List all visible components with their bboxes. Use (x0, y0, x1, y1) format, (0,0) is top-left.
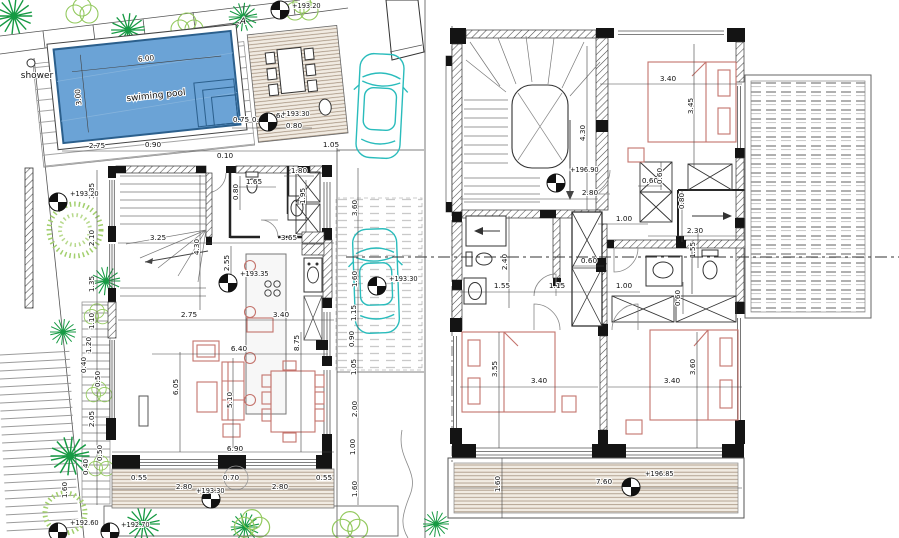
level-marker-icon (622, 478, 640, 496)
dim-label: 3.65 (281, 233, 297, 242)
level-label: +193.20 (292, 2, 321, 10)
dim-label: 3.40 (664, 376, 681, 385)
level-marker-icon (259, 113, 277, 131)
dim-label: 6.05 (171, 379, 180, 395)
dim-label: 3.40 (273, 310, 290, 319)
level-label: +193.30 (196, 487, 225, 495)
dim-label: 0.10 (217, 151, 234, 160)
swimming-pool (54, 31, 241, 143)
dim-label: 0.55 (131, 473, 147, 482)
dim-label: 7.60 (596, 477, 613, 486)
bed (628, 62, 736, 162)
dim-label: 8.75 (292, 335, 301, 351)
dim-label: 0.40 (79, 357, 88, 374)
level-label: +193.30 (389, 275, 418, 283)
washbasin-icon (469, 283, 482, 300)
car-icon (350, 53, 409, 160)
dim-label: 0.50 (93, 371, 102, 388)
dim-label: 6.90 (227, 444, 244, 453)
dim-label: 5.10 (225, 392, 234, 409)
dim-label: 3.55 (490, 361, 499, 377)
level-label: +193.20 (70, 190, 99, 198)
dim-label: 0.80 (286, 121, 303, 130)
dim-label: 0.50 (95, 445, 104, 462)
dim-label: 2.55 (222, 255, 231, 271)
dim-label: 1.60 (493, 476, 502, 493)
dim-label: 0.55 (316, 473, 332, 482)
dim-label: 1.95 (298, 188, 307, 204)
dim-label: 3.40 (531, 376, 548, 385)
tree-icon (423, 511, 449, 537)
dim-label: 2.75 (181, 310, 197, 319)
tree-icon (50, 319, 76, 345)
dim-label: 2.80 (582, 188, 599, 197)
level-marker-icon (101, 523, 119, 538)
dim-label: 2.80 (176, 482, 193, 491)
dim-label: 0.60 (655, 168, 664, 185)
dim-label: 2.75 (89, 141, 105, 150)
level-label: +192.70 (121, 521, 150, 529)
shower-label: shower (21, 71, 54, 81)
dim-label: 0.75 (233, 115, 249, 124)
dim-label: 2.80 (272, 482, 289, 491)
level-label: +193.30 (281, 110, 310, 118)
toilet-icon (476, 253, 492, 265)
dim-label: 1.35 (87, 276, 96, 292)
dim-label: 3.60 (350, 200, 359, 217)
dim-label: 0.60 (673, 290, 682, 307)
kitchen-sink (304, 258, 322, 292)
level-label: +196.85 (645, 470, 674, 478)
dim-label: 3.45 (686, 98, 695, 114)
dim-label: 1.55 (494, 281, 510, 290)
dim-label: 0.40 (81, 459, 90, 476)
dim-label: 2.40 (500, 254, 509, 271)
level-marker-icon (368, 277, 386, 295)
bush-icon (332, 512, 367, 538)
dim-label: 4.30 (192, 239, 201, 256)
dim-label: 0.90 (145, 140, 162, 149)
dim-label: 1.20 (84, 337, 93, 354)
utility-box (386, 0, 424, 60)
dim-label: 1.00 (616, 281, 633, 290)
dim-label: 1.05 (323, 140, 339, 149)
dim-label: 3.00 (73, 88, 84, 105)
dim-label: 1.80 (291, 166, 308, 175)
dim-label: 1.15 (349, 305, 358, 321)
dim-label: 2.05 (87, 411, 96, 427)
washbasin-icon (653, 262, 673, 278)
tree-icon (0, 0, 32, 34)
bed (626, 330, 738, 434)
kitchen-island (246, 254, 286, 414)
level-marker-icon (219, 274, 237, 292)
shower-head-icon (27, 59, 35, 67)
dim-label: 2.10 (87, 230, 96, 247)
swimming-pool-area: 6.00 3.00 swiming pool (31, 24, 255, 167)
dim-label: 0.70 (223, 473, 240, 482)
dim-label: 2.30 (687, 226, 704, 235)
architectural-drawing: A 6.00 3.00 swiming pool shower (0, 0, 899, 538)
dim-label: 1.60 (350, 481, 359, 498)
dim-label: 1.55 (688, 242, 697, 258)
level-label: +192.60 (70, 519, 99, 527)
dim-label: 3.25 (150, 233, 166, 242)
dim-label: 1.60 (350, 271, 359, 288)
dim-label: 6.40 (231, 344, 248, 353)
dim-label: 1.10 (87, 313, 96, 330)
dim-label: 0.80 (677, 193, 686, 210)
dim-label: 2.00 (350, 401, 359, 418)
bed (462, 332, 576, 412)
dim-label: 3.40 (660, 74, 677, 83)
site-steps (0, 344, 79, 538)
dim-label: 1.00 (348, 439, 357, 456)
section-marker-label: A (239, 17, 246, 27)
upper-floor-plan (446, 26, 871, 518)
dim-label: 3.60 (688, 359, 697, 376)
toilet-icon (703, 261, 717, 279)
level-label: +193.35 (240, 270, 269, 278)
dim-label: 0.80 (231, 184, 240, 201)
bush-icon (66, 0, 98, 23)
level-marker-icon (49, 193, 67, 211)
dim-label: 4.30 (578, 125, 587, 142)
dim-label: 1.60 (60, 482, 69, 499)
level-marker-icon (547, 174, 565, 192)
bush-icon (234, 510, 269, 537)
level-marker-icon (49, 523, 67, 538)
level-marker-icon (271, 1, 289, 19)
dim-label: 1.65 (246, 177, 262, 186)
outdoor-table (277, 47, 305, 93)
level-label: +196.90 (570, 166, 599, 174)
tv-bench (139, 396, 148, 426)
floor-plan-canvas: A 6.00 3.00 swiming pool shower (0, 0, 899, 538)
dim-label: 0.90 (347, 331, 356, 348)
dim-label: 1.00 (616, 214, 633, 223)
dim-label: 1.15 (549, 281, 565, 290)
dim-label: 1.05 (349, 359, 358, 375)
dim-label: 6.00 (137, 53, 154, 64)
